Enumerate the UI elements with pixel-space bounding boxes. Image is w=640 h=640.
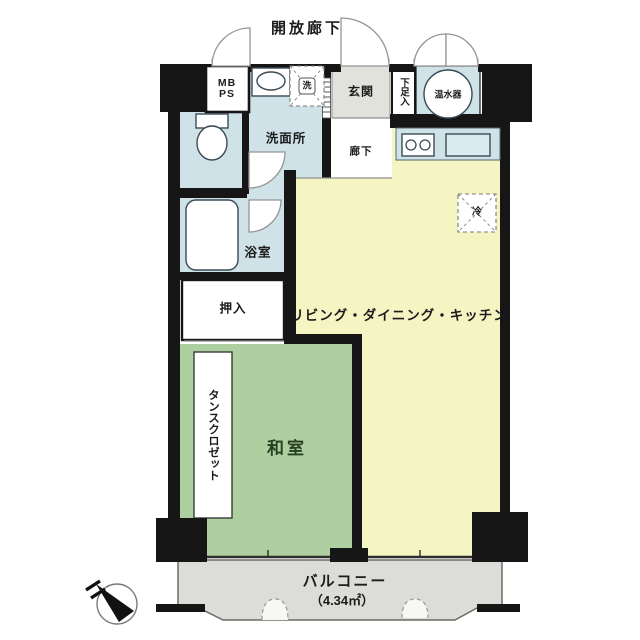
toilet-fixture: [196, 114, 228, 160]
corridor-door-arc: [212, 28, 250, 66]
closet-label: 押入: [219, 302, 246, 315]
tansu-closet-label: タンスクロゼット: [207, 389, 219, 481]
bathroom-label: 浴室: [244, 246, 271, 259]
kitchen-sink: [446, 134, 490, 156]
entrance-label: 玄関: [348, 86, 374, 99]
floorplan-canvas: 開放廊下 MB PS 玄関 下足入 温水器 洗面所 廊下 浴室 押入 リビング・…: [0, 0, 640, 640]
vanity-sink-basin: [257, 72, 285, 90]
balcony-wall-right: [477, 604, 520, 612]
bathtub: [186, 200, 238, 270]
stove: [402, 134, 434, 156]
open-corridor-label: 開放廊下: [271, 21, 343, 37]
refrigerator-mark-label: 冷: [472, 208, 482, 219]
washer-mark-label: 洗: [302, 81, 311, 90]
heater-door-right-arc: [446, 34, 478, 66]
pillar-top-right: [482, 64, 532, 122]
north-mark: [86, 581, 105, 598]
pillar-bottom-right: [472, 512, 528, 562]
hallway-label: 廊下: [350, 146, 373, 157]
mbps-label: MB PS: [218, 78, 236, 100]
ps-label: PS: [218, 89, 236, 100]
kitchen-counter: [396, 128, 500, 160]
pillar-bottom-left: [156, 518, 207, 562]
entrance-door-arc: [341, 18, 389, 66]
balcony-label: バルコニー: [303, 574, 388, 590]
japanese-room-label: 和室: [267, 440, 307, 458]
balcony-wall-left: [156, 604, 205, 612]
balcony-area-label: （4.34㎡）: [310, 594, 374, 608]
water-heater-label: 温水器: [434, 90, 461, 99]
washroom-label: 洗面所: [266, 132, 307, 145]
north-indicator: [86, 581, 137, 624]
pillar-top-left: [160, 64, 206, 112]
ldk-label: リビング・ダイニング・キッチン: [290, 309, 508, 323]
heater-door-left-arc: [414, 34, 446, 66]
shoe-cabinet-label: 下足入: [398, 78, 408, 107]
